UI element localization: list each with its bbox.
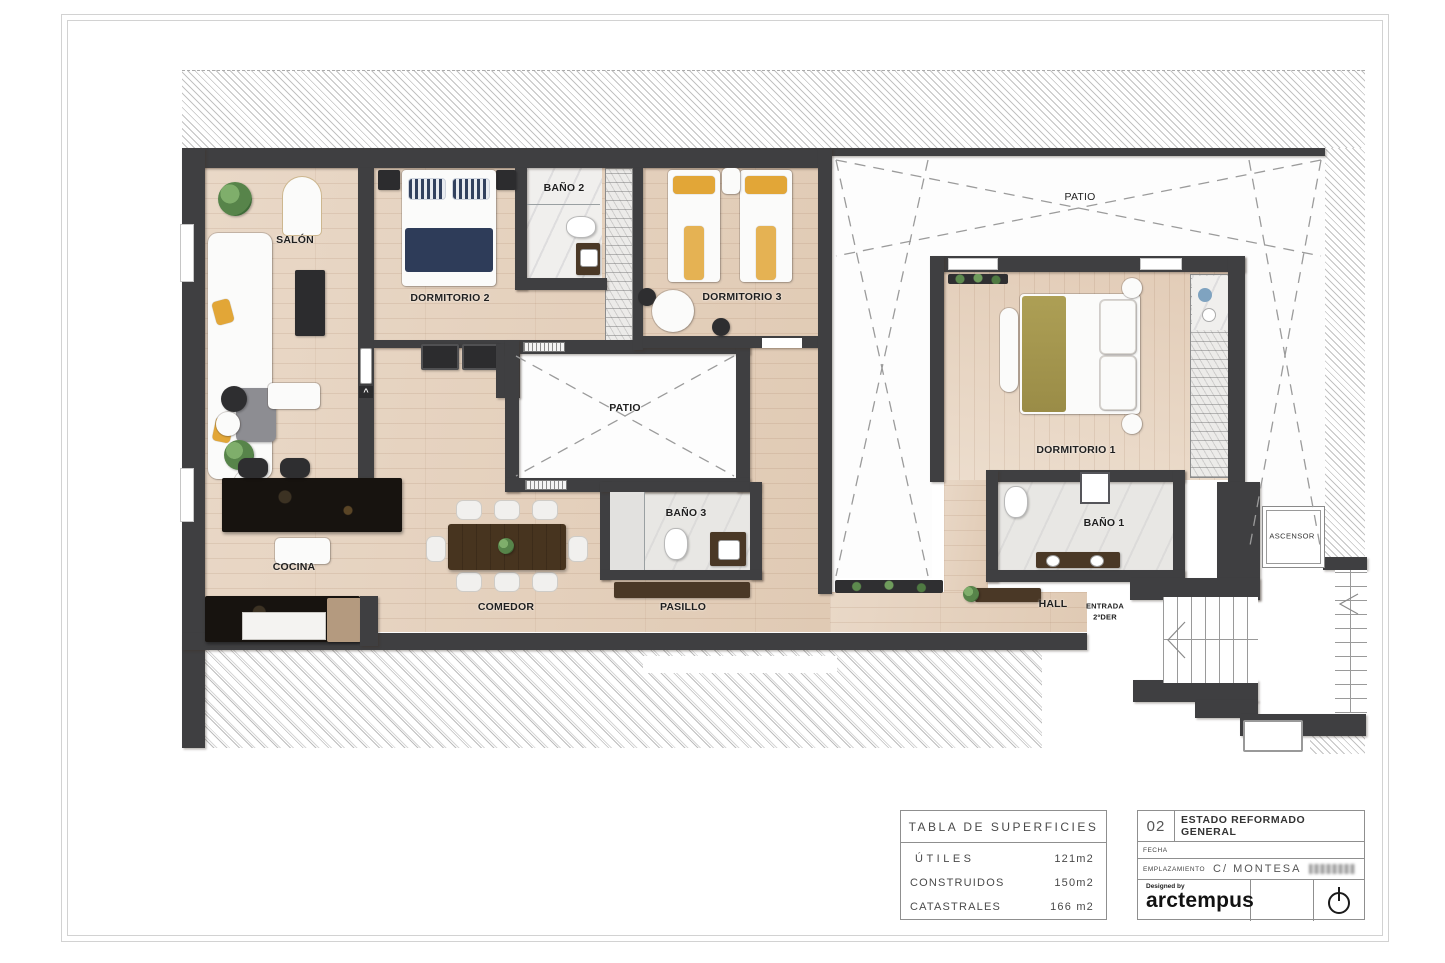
sheet-number: 02	[1138, 811, 1175, 841]
plan-sheet: ^	[0, 0, 1445, 963]
surface-value-utiles: 121m2	[1054, 853, 1094, 865]
title-block-empty-cell	[1251, 880, 1314, 921]
brand-logo: Designed by arctempus	[1138, 880, 1251, 921]
fecha-row: FECHA	[1138, 842, 1364, 859]
table-row: CONSTRUIDOS 150m2	[901, 871, 1106, 895]
surface-label-catastrales: CATASTRALES	[910, 901, 1001, 913]
room-label-dormitorio3: DORMITORIO 3	[702, 291, 781, 303]
surfaces-table: TABLA DE SUPERFICIES ÚTILES 121m2 CONSTR…	[900, 810, 1107, 920]
stair-direction-arrows	[1168, 594, 1358, 658]
brand-name: arctempus	[1146, 890, 1250, 912]
room-label-salon: SALÓN	[276, 234, 314, 246]
emplazamiento-label: EMPLAZAMIENTO	[1143, 866, 1205, 873]
fecha-label: FECHA	[1143, 847, 1168, 854]
table-row: CATASTRALES 166 m2	[901, 895, 1106, 919]
room-label-cocina: COCINA	[273, 561, 316, 573]
title-block-row-title: 02 ESTADO REFORMADO GENERAL	[1138, 811, 1364, 842]
room-label-comedor: COMEDOR	[478, 601, 534, 613]
surface-label-utiles: ÚTILES	[910, 853, 975, 865]
room-label-hall: HALL	[1039, 598, 1068, 610]
sheet-title: ESTADO REFORMADO GENERAL	[1175, 811, 1364, 841]
table-row: ÚTILES 121m2	[901, 847, 1106, 871]
room-label-dormitorio2: DORMITORIO 2	[410, 292, 489, 304]
surfaces-table-title: TABLA DE SUPERFICIES	[901, 811, 1106, 843]
room-label-bano3: BAÑO 3	[666, 507, 707, 519]
emplazamiento-row: EMPLAZAMIENTO C/ MONTESA	[1138, 859, 1364, 880]
north-indicator-cell	[1314, 880, 1364, 921]
emplazamiento-value: C/ MONTESA	[1213, 863, 1301, 875]
room-label-dormitorio1: DORMITORIO 1	[1036, 444, 1115, 456]
title-block-footer: Designed by arctempus	[1138, 880, 1364, 921]
title-block: 02 ESTADO REFORMADO GENERAL FECHA EMPLAZ…	[1137, 810, 1365, 920]
room-label-entrada-floor: 2ºDER	[1093, 613, 1117, 622]
room-label-entrada: ENTRADA	[1086, 602, 1124, 611]
room-label-bano2: BAÑO 2	[544, 182, 585, 194]
north-indicator-icon	[1324, 886, 1354, 916]
surface-label-construidos: CONSTRUIDOS	[910, 877, 1004, 889]
emplazamiento-redacted-text	[1309, 864, 1355, 874]
room-label-ascensor: ASCENSOR	[1269, 532, 1314, 541]
room-label-patio-central: PATIO	[609, 402, 641, 414]
surface-value-construidos: 150m2	[1054, 877, 1094, 889]
room-label-patio-right: PATIO	[1065, 191, 1096, 203]
room-label-pasillo: PASILLO	[660, 601, 706, 613]
room-label-bano1: BAÑO 1	[1084, 517, 1125, 529]
surface-value-catastrales: 166 m2	[1050, 901, 1094, 913]
